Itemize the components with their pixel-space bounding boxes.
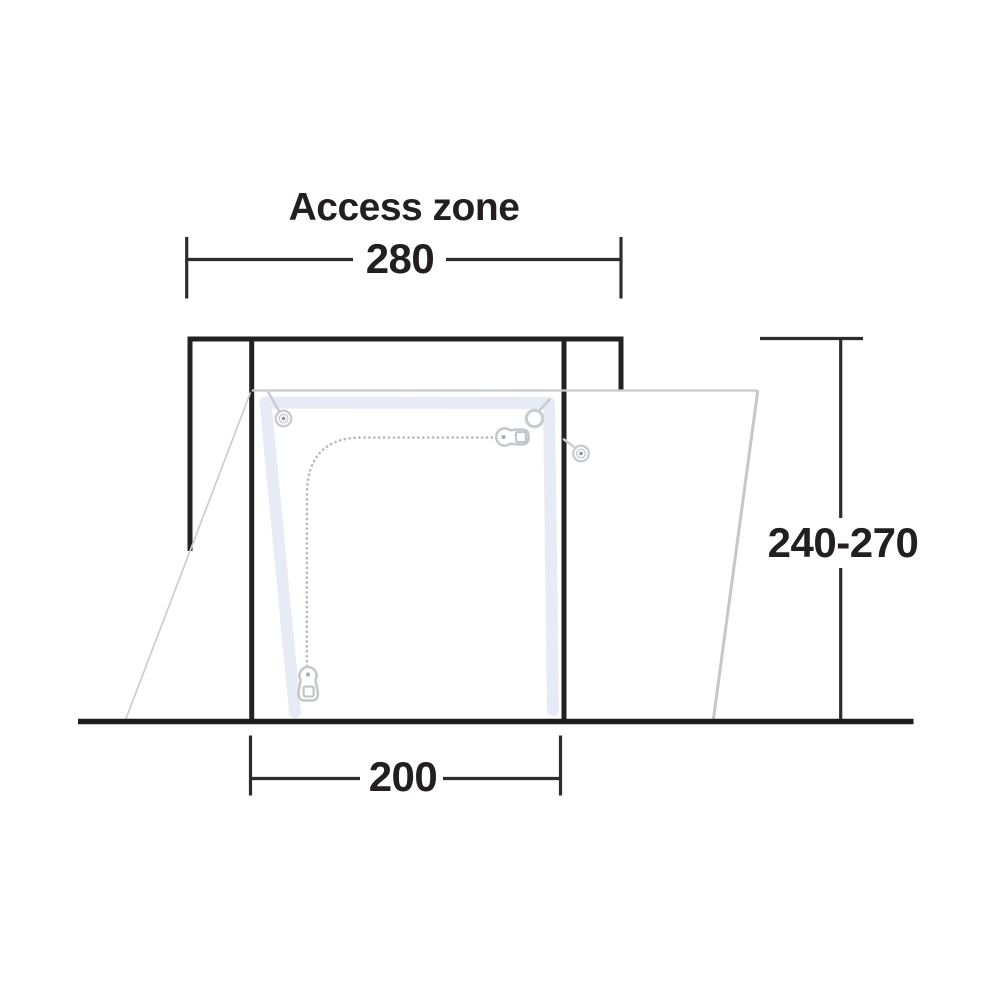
toggle-fastener-right-icon [564,440,589,462]
page-title: Access zone [289,186,520,229]
fastener-ring [526,410,542,426]
zipper-pull-hole [516,432,526,442]
access-zone-width-dimension: 280 [187,235,621,299]
zipper-pull-pin [501,435,505,439]
door-panel-trim [266,403,554,713]
height-range-dimension: 240-270 [760,339,918,720]
zipper-track-line [307,438,494,667]
zipper-pull-pin [306,672,310,676]
awning-right-slope [713,391,758,721]
awning-outline [125,391,758,721]
access-zone-width-value: 280 [366,235,435,282]
diagram-canvas: Access zone 280 [0,0,1000,1000]
zipper-pull-hole [304,687,314,697]
zipper-pull-top-icon [496,428,528,445]
door-width-value: 200 [369,753,438,800]
fastener-button-dot [579,452,583,456]
zipper-pull-bottom-icon [298,667,317,700]
fastener-button-dot [282,417,286,421]
door-width-dimension: 200 [251,736,561,801]
awning-access-zone-diagram: Access zone 280 [0,0,1000,1000]
height-range-value: 240-270 [768,519,919,566]
